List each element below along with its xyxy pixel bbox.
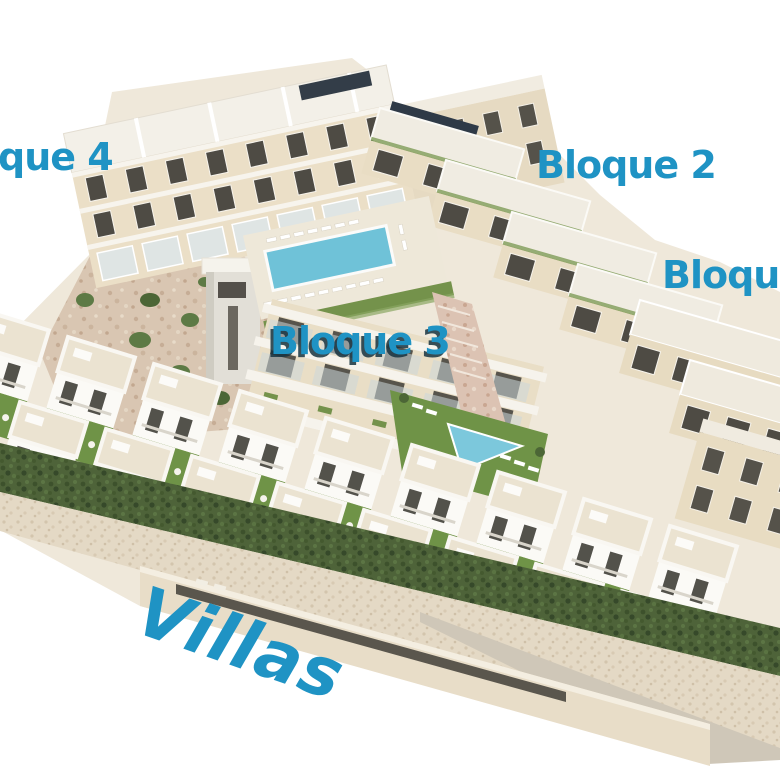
site-plan-render: que 4 Bloque 2 Bloque Bloque 3 Villas: [0, 0, 780, 780]
render-scene: [0, 0, 780, 780]
label-bloque-3: Bloque 3: [270, 322, 450, 360]
label-bloque-1: Bloque: [662, 256, 780, 294]
label-bloque-2: Bloque 2: [536, 146, 716, 184]
label-bloque-4: que 4: [0, 138, 113, 176]
